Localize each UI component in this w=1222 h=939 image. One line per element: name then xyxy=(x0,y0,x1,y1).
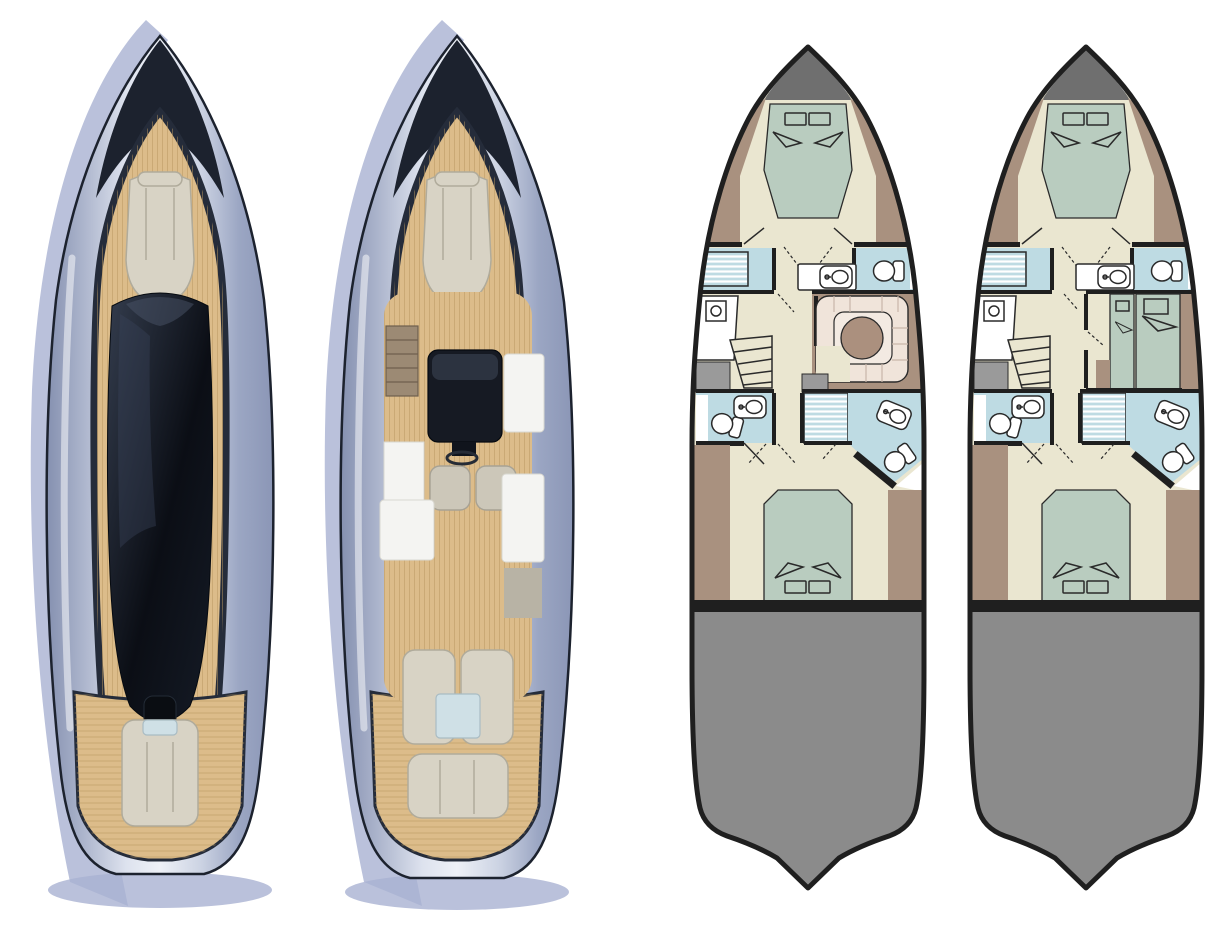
aft-berth xyxy=(764,490,852,602)
aft-berth xyxy=(1042,490,1130,602)
head-port-aft xyxy=(696,393,772,443)
aft-bench-cushion xyxy=(143,720,177,735)
side-locker xyxy=(504,568,542,618)
aft-cabin-side-port xyxy=(972,445,1008,603)
stern-shadow xyxy=(48,872,272,908)
dinette-starboard xyxy=(812,294,924,392)
shower-starboard-aft xyxy=(804,393,848,443)
starboard-cabinet xyxy=(504,354,544,432)
aft-cabin-side-starboard xyxy=(1166,490,1200,602)
engine-room xyxy=(692,612,924,896)
lounge-table-cushion xyxy=(436,694,480,738)
engine-room-bulkhead xyxy=(970,600,1202,612)
aft-bench xyxy=(122,720,198,826)
forward-berth xyxy=(1042,104,1130,218)
forward-berth xyxy=(764,104,852,218)
engine-room xyxy=(970,612,1202,896)
cabin-step xyxy=(1096,360,1110,390)
stern-shadow xyxy=(345,874,569,910)
render-top-view-hardtop-closed xyxy=(10,8,308,908)
floorplan-lower-deck-three-cabin xyxy=(964,44,1208,896)
yacht-layout-sheet xyxy=(0,0,1222,939)
companionway-stairs xyxy=(386,326,418,396)
render-top-view-open-interior xyxy=(302,2,642,927)
guest-bed-single xyxy=(1110,294,1134,392)
bow-seat xyxy=(423,172,491,304)
engine-room-bulkhead xyxy=(692,600,924,612)
vanity xyxy=(1076,264,1134,290)
head-port-aft xyxy=(974,393,1050,443)
floorplan-lower-deck-dinette xyxy=(686,44,930,896)
aft-ottoman xyxy=(408,754,508,818)
cockpit-table xyxy=(380,500,434,560)
dinette-table xyxy=(841,317,883,359)
aft-cabin-side-port xyxy=(694,445,730,603)
bow-seat xyxy=(126,172,194,304)
shower-starboard-aft xyxy=(1082,393,1126,443)
aft-cabin-side-starboard xyxy=(888,490,922,602)
hardtop-roof xyxy=(107,293,212,722)
galley-cabinet xyxy=(502,474,544,562)
guest-bed-double xyxy=(1136,294,1180,392)
vanity xyxy=(798,264,856,290)
